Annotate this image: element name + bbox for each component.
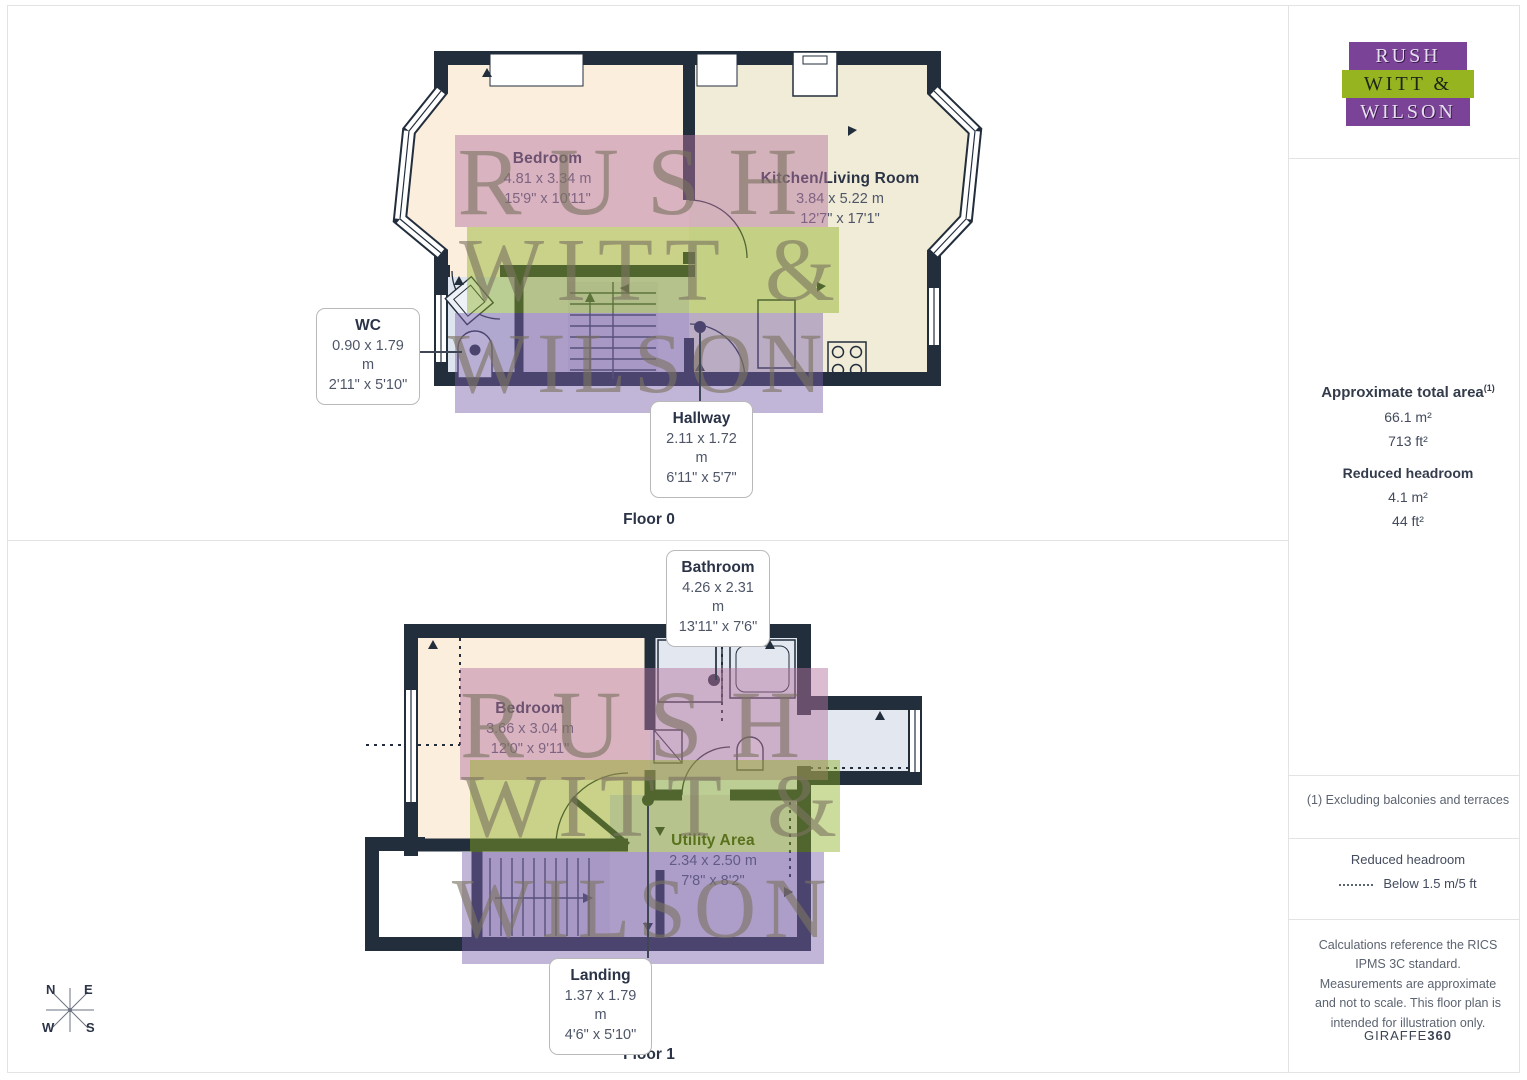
callout-bathroom: Bathroom 4.26 x 2.31 m 13'11" x 7'6" [666, 550, 770, 647]
floorplan-page: Bedroom 4.81 x 3.34 m 15'9" x 10'11" Kit… [0, 0, 1527, 1080]
info-sidebar: RUSH WITT & WILSON Approximate total are… [1289, 0, 1527, 1080]
floor1-void [383, 856, 470, 937]
reduced-headroom-legend: Reduced headroom Below 1.5 m/5 ft [1289, 852, 1527, 891]
footnote-marker: (1) [1484, 383, 1495, 393]
callout-landing: Landing 1.37 x 1.79 m 4'6" x 5'10" [549, 958, 652, 1055]
legend-title: Reduced headroom [1289, 852, 1527, 867]
floor0-caption: Floor 0 [539, 511, 759, 529]
appliance-icon [793, 52, 837, 96]
callout-connector [699, 333, 701, 403]
floor1-corridor-fill [797, 703, 908, 778]
room-label-kitchen-living: Kitchen/Living Room 3.84 x 5.22 m 12'7" … [740, 168, 940, 229]
area-summary: Approximate total area(1) 66.1 m² 713 ft… [1289, 383, 1527, 529]
toilet-icon [737, 737, 763, 770]
room-label-utility-area: Utility Area 2.34 x 2.50 m 7'8" x 8'2" [613, 830, 813, 891]
disclaimer-text: Calculations reference the RICS IPMS 3C … [1313, 936, 1503, 1033]
survey-point [694, 321, 706, 333]
agency-logo: RUSH WITT & WILSON [1342, 42, 1474, 126]
logo-row: WITT & [1342, 70, 1474, 98]
callout-connector [647, 806, 649, 958]
giraffe360-brand: GIRAFFE360 [1289, 1028, 1527, 1043]
total-area-m2: 66.1 m² [1289, 409, 1527, 425]
toilet-icon [458, 331, 492, 378]
legend-label: Below 1.5 m/5 ft [1383, 876, 1476, 891]
survey-point [642, 794, 654, 806]
reduced-headroom-ft2: 44 ft² [1289, 513, 1527, 529]
reduced-headroom-m2: 4.1 m² [1289, 489, 1527, 505]
brand-name: GIRAFFE [1364, 1028, 1427, 1043]
reduced-headroom-title: Reduced headroom [1289, 465, 1527, 481]
callout-hallway: Hallway 2.11 x 1.72 m 6'11" x 5'7" [650, 401, 753, 498]
brand-suffix: 360 [1427, 1028, 1452, 1043]
total-area-title: Approximate total area(1) [1289, 383, 1527, 401]
total-area-ft2: 713 ft² [1289, 433, 1527, 449]
wall-recess [490, 54, 583, 86]
room-label-bedroom-f0: Bedroom 4.81 x 3.34 m 15'9" x 10'11" [440, 148, 655, 209]
footnote: (1) Excluding balconies and terraces [1299, 793, 1517, 807]
logo-row: RUSH [1349, 42, 1467, 70]
compass-rose: N E W S [28, 972, 112, 1048]
dotted-line-sample [1339, 884, 1373, 886]
compass-west: W [42, 1020, 54, 1035]
callout-wc: WC 0.90 x 1.79 m 2'11" x 5'10" [316, 308, 420, 405]
compass-east: E [84, 982, 93, 997]
callout-connector [420, 351, 462, 353]
compass-star [28, 972, 112, 1048]
floor1-bathroom-fill [650, 638, 797, 795]
wall-recess [697, 54, 737, 86]
floor0-plan [0, 0, 1287, 540]
compass-south: S [86, 1020, 95, 1035]
room-label-bedroom-f1: Bedroom 3.66 x 3.04 m 12'0" x 9'11" [430, 698, 630, 759]
compass-north: N [46, 982, 55, 997]
legend-row: Below 1.5 m/5 ft [1289, 876, 1527, 891]
logo-row: WILSON [1346, 98, 1470, 126]
